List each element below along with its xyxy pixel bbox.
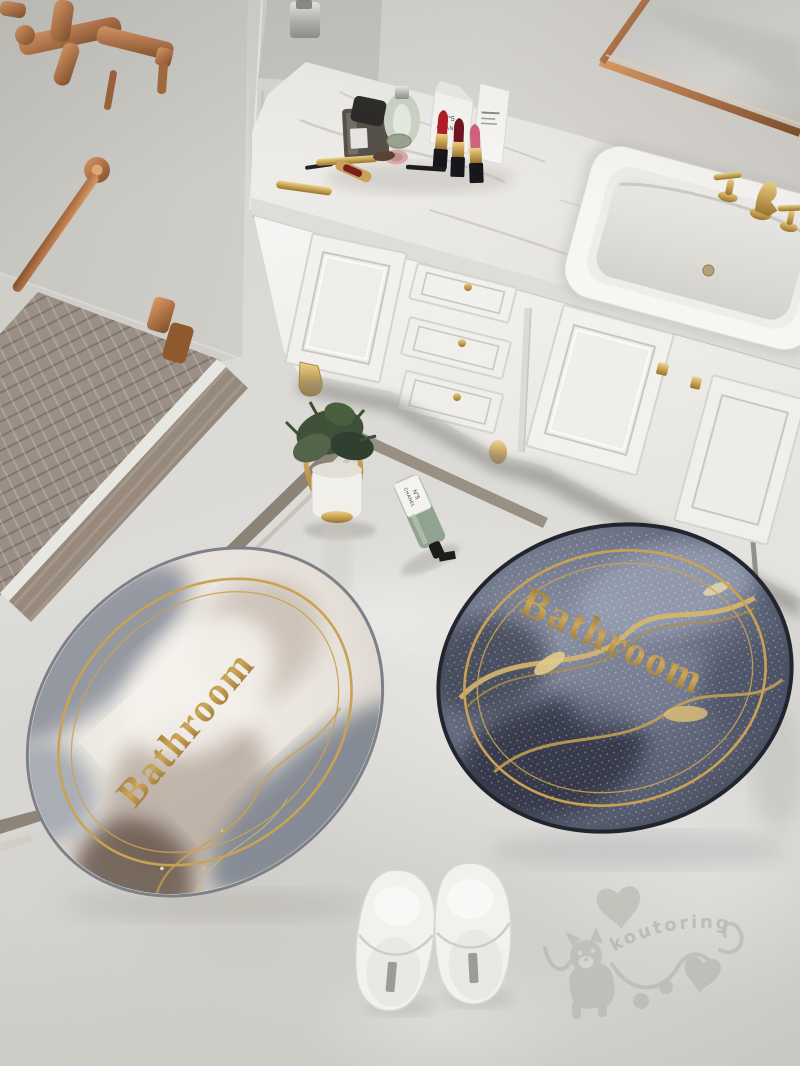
bathroom-photo: N°5 CHANEL xyxy=(0,0,800,1066)
photo-vignette xyxy=(0,0,800,1066)
